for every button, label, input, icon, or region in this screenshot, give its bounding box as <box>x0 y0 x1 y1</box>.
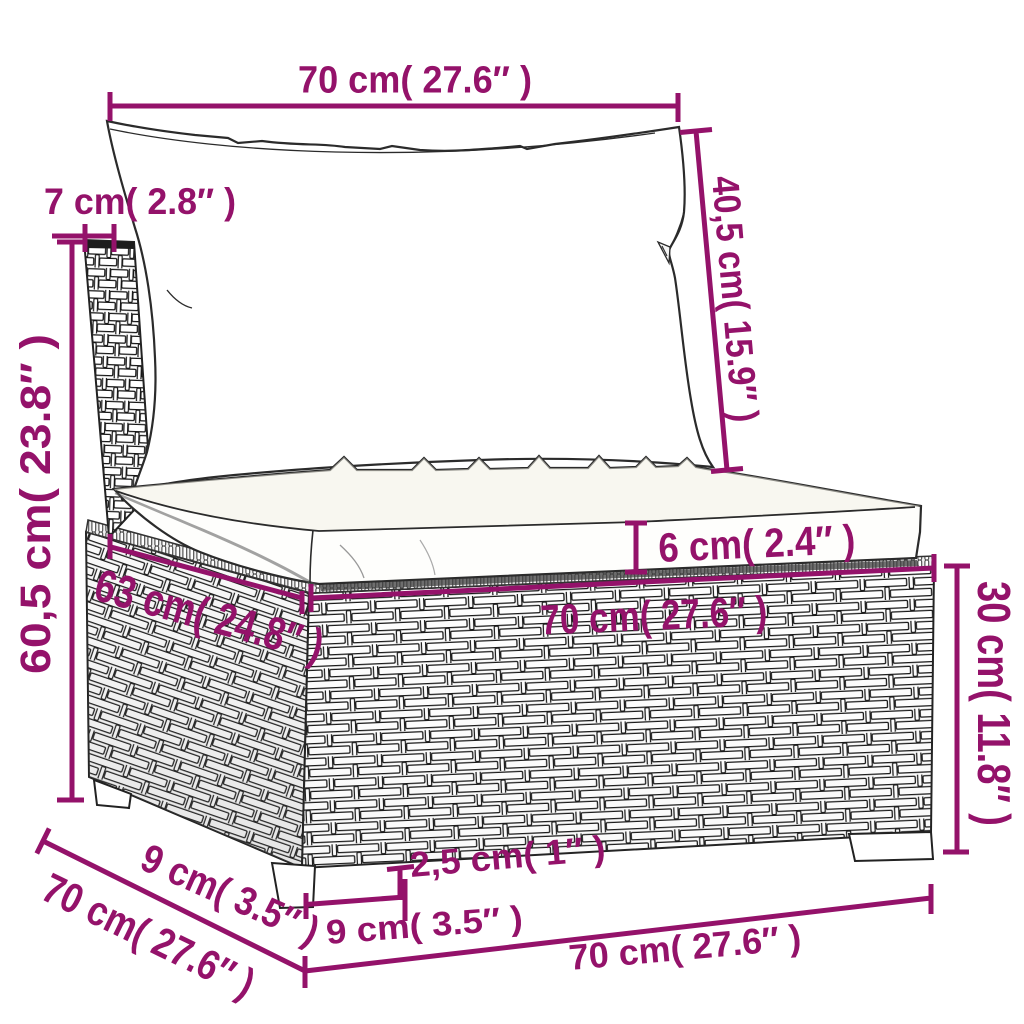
svg-text:70 cm( 27.6″ ): 70 cm( 27.6″ ) <box>298 60 532 102</box>
svg-text:30 cm( 11.8″ ): 30 cm( 11.8″ ) <box>968 581 1020 826</box>
svg-text:60,5 cm( 23.8″ ): 60,5 cm( 23.8″ ) <box>13 334 60 674</box>
svg-text:7 cm( 2.8″ ): 7 cm( 2.8″ ) <box>44 181 236 222</box>
svg-text:70 cm( 27.6″ ): 70 cm( 27.6″ ) <box>539 587 768 643</box>
svg-text:6 cm( 2.4″ ): 6 cm( 2.4″ ) <box>657 516 856 571</box>
